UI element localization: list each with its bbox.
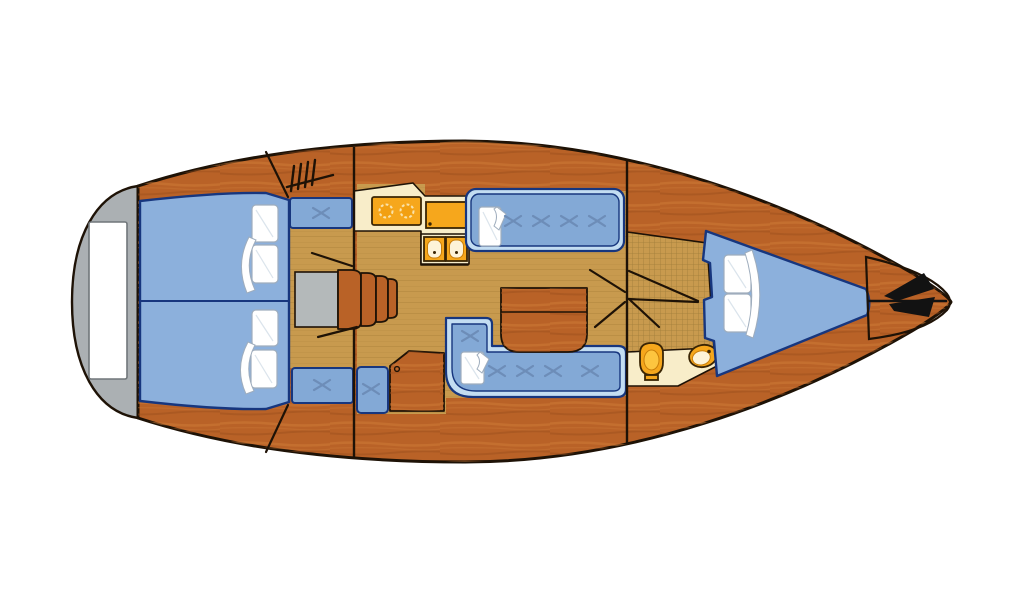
companionway-steps: [295, 270, 397, 329]
nav-station: [390, 351, 444, 411]
sink-drain: [455, 251, 458, 254]
toilet-bowl: [644, 350, 659, 370]
sink-basin: [450, 240, 464, 258]
basin-drain: [707, 350, 711, 354]
step: [376, 276, 388, 322]
step: [388, 279, 397, 318]
stove-burner: [401, 205, 414, 218]
sink-drain: [433, 251, 436, 254]
stove-burner: [380, 205, 393, 218]
settee-starboard: [466, 189, 624, 251]
boat-floor-plan-canvas: [0, 0, 1024, 600]
aft-double-berth: [140, 193, 289, 409]
step: [338, 270, 361, 329]
galley-worktop: [426, 202, 466, 228]
boat-floor-plan: [0, 0, 1024, 600]
step-landing: [295, 272, 338, 327]
stern-transom: [72, 186, 138, 418]
worktop-hinge-dot: [428, 222, 431, 225]
head-grate-floor: [627, 232, 714, 356]
swim-platform: [89, 222, 127, 379]
sink-basin: [428, 240, 442, 258]
salon-table: [501, 288, 587, 352]
toilet-base: [645, 375, 658, 380]
step: [361, 273, 376, 326]
